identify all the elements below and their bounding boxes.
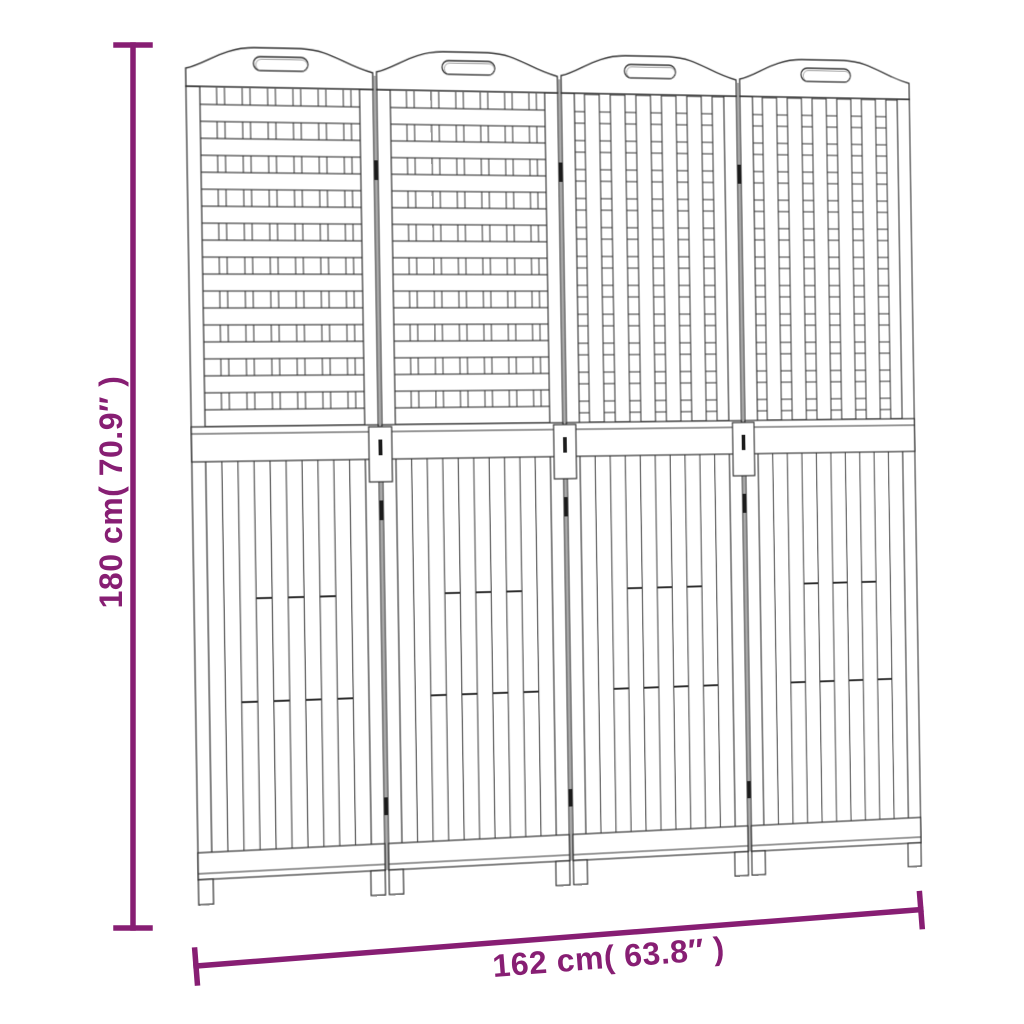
product-diagram: 180 cm( 70.9″ ) 162 cm( 63.8″ ): [0, 0, 1024, 1024]
dimension-overlay: 180 cm( 70.9″ ) 162 cm( 63.8″ ): [0, 0, 1024, 1024]
width-dimension-right-cap: [920, 894, 923, 927]
height-dimension-label: 180 cm( 70.9″ ): [93, 376, 129, 609]
width-dimension: 162 cm( 63.8″ ): [195, 894, 924, 1007]
height-dimension: 180 cm( 70.9″ ): [93, 45, 150, 928]
width-dimension-left-cap: [195, 950, 198, 983]
